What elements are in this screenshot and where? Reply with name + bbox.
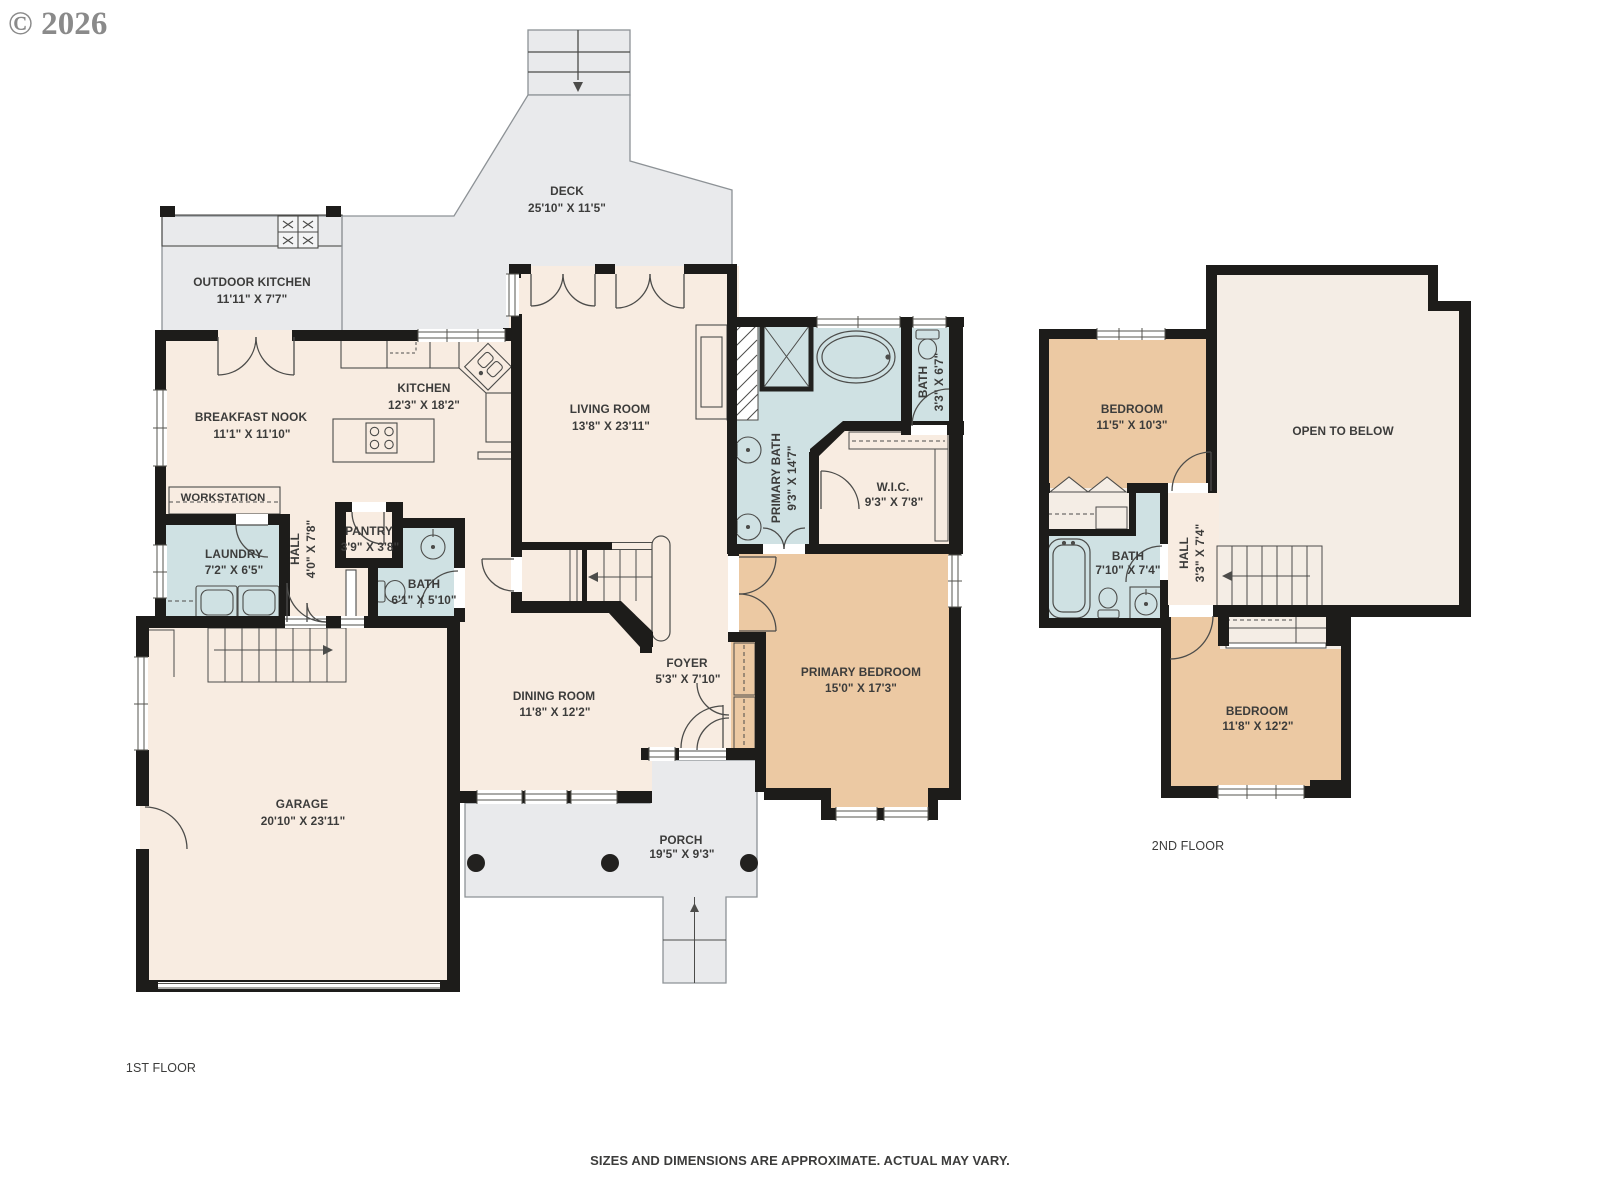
svg-text:3'3" X 6'7": 3'3" X 6'7"	[932, 353, 946, 412]
svg-text:BATH: BATH	[916, 366, 930, 398]
svg-text:DECK: DECK	[550, 184, 584, 198]
svg-text:LAUNDRY: LAUNDRY	[205, 547, 263, 561]
svg-text:1ST FLOOR: 1ST FLOOR	[126, 1061, 196, 1075]
svg-text:BEDROOM: BEDROOM	[1101, 402, 1163, 416]
svg-text:11'1" X 11'10": 11'1" X 11'10"	[213, 427, 290, 441]
svg-text:6'1" X 5'10": 6'1" X 5'10"	[391, 593, 456, 607]
svg-text:11'8" X 12'2": 11'8" X 12'2"	[519, 705, 590, 719]
svg-text:11'5" X 10'3": 11'5" X 10'3"	[1096, 418, 1167, 432]
svg-text:SIZES AND DIMENSIONS ARE APPRO: SIZES AND DIMENSIONS ARE APPROXIMATE. AC…	[590, 1153, 1010, 1168]
svg-text:9'3" X 14'7": 9'3" X 14'7"	[785, 445, 799, 510]
svg-text:PRIMARY BATH: PRIMARY BATH	[769, 433, 783, 523]
svg-text:OUTDOOR KITCHEN: OUTDOOR KITCHEN	[193, 275, 311, 289]
svg-text:FOYER: FOYER	[666, 656, 708, 670]
svg-text:OPEN TO BELOW: OPEN TO BELOW	[1292, 424, 1394, 438]
svg-text:7'10" X 7'4": 7'10" X 7'4"	[1095, 563, 1160, 577]
svg-text:KITCHEN: KITCHEN	[397, 381, 450, 395]
svg-text:20'10" X 23'11": 20'10" X 23'11"	[261, 814, 346, 828]
svg-text:2ND FLOOR: 2ND FLOOR	[1152, 839, 1224, 853]
svg-text:BEDROOM: BEDROOM	[1226, 704, 1288, 718]
svg-text:BATH: BATH	[408, 577, 440, 591]
svg-text:W.I.C.: W.I.C.	[877, 480, 910, 494]
svg-text:7'2" X 6'5": 7'2" X 6'5"	[205, 563, 264, 577]
svg-text:HALL: HALL	[288, 533, 302, 565]
svg-text:9'3" X 7'8": 9'3" X 7'8"	[865, 495, 924, 509]
svg-text:11'11" X 7'7": 11'11" X 7'7"	[217, 292, 288, 306]
svg-text:PORCH: PORCH	[659, 833, 702, 847]
svg-text:11'8" X 12'2": 11'8" X 12'2"	[1222, 719, 1293, 733]
svg-text:GARAGE: GARAGE	[276, 797, 328, 811]
svg-text:HALL: HALL	[1177, 537, 1191, 569]
svg-text:19'5" X 9'3": 19'5" X 9'3"	[649, 847, 714, 861]
svg-text:5'3" X 7'10": 5'3" X 7'10"	[655, 672, 720, 686]
svg-text:© 2026: © 2026	[8, 6, 108, 42]
svg-text:BREAKFAST NOOK: BREAKFAST NOOK	[195, 410, 308, 424]
svg-text:LIVING ROOM: LIVING ROOM	[570, 402, 650, 416]
svg-text:12'3" X 18'2": 12'3" X 18'2"	[388, 398, 460, 412]
svg-text:15'0" X 17'3": 15'0" X 17'3"	[825, 681, 897, 695]
svg-text:DINING ROOM: DINING ROOM	[513, 689, 595, 703]
svg-text:3'3" X 7'4": 3'3" X 7'4"	[1193, 524, 1207, 583]
svg-text:BATH: BATH	[1112, 549, 1144, 563]
svg-text:PANTRY: PANTRY	[345, 524, 393, 538]
svg-text:13'8" X 23'11": 13'8" X 23'11"	[572, 419, 650, 433]
svg-text:PRIMARY BEDROOM: PRIMARY BEDROOM	[801, 665, 921, 679]
svg-text:4'0" X 7'8": 4'0" X 7'8"	[304, 520, 318, 579]
svg-text:WORKSTATION: WORKSTATION	[181, 492, 266, 504]
svg-text:3'9" X 3'8": 3'9" X 3'8"	[341, 540, 400, 554]
svg-text:25'10" X 11'5": 25'10" X 11'5"	[528, 201, 606, 215]
